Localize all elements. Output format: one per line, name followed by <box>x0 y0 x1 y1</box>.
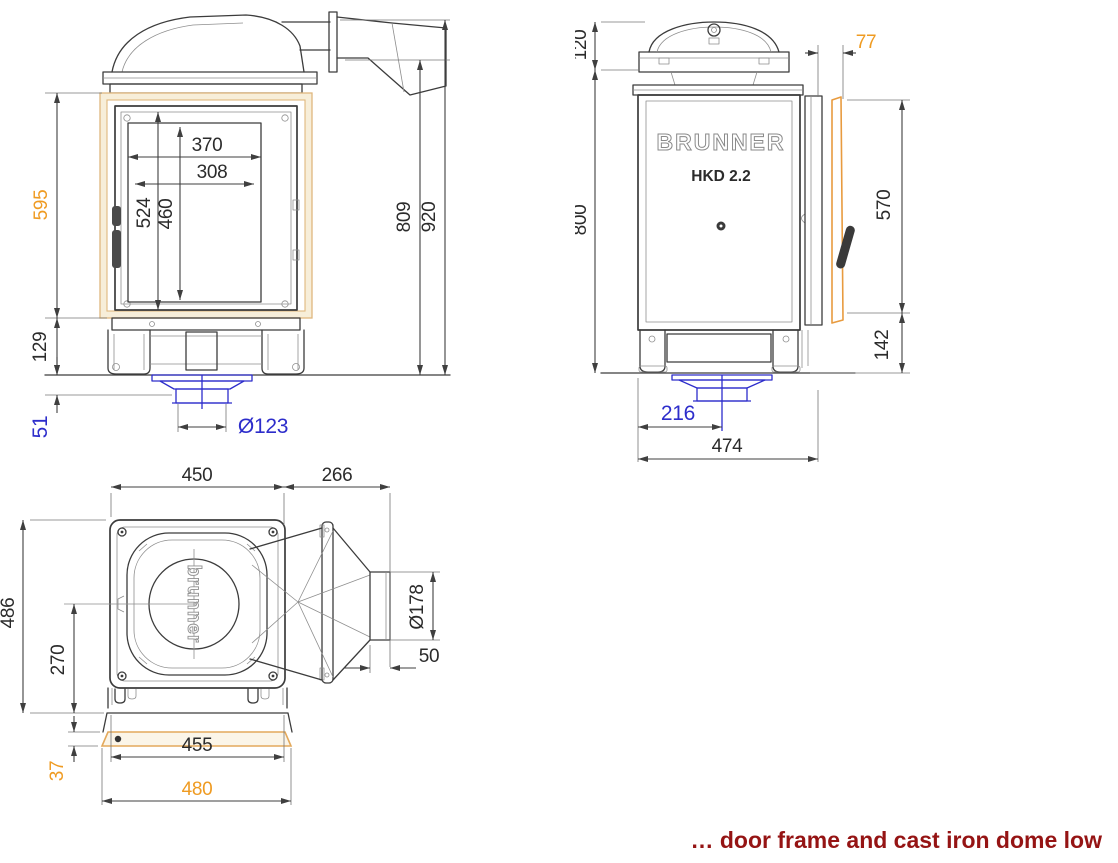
dim-body-depth: 486 <box>0 598 19 629</box>
front-plinth <box>45 318 450 375</box>
dim-flue-length: 266 <box>322 465 353 486</box>
dim-dome-height: 120 <box>575 30 591 61</box>
door-hinge-upper <box>112 206 121 226</box>
top-flue-cone <box>250 522 390 683</box>
dim-flue-center-offset: 270 <box>48 645 69 676</box>
dim-glass-width-inner: 308 <box>197 162 228 183</box>
top-view: brunner 450 266 <box>0 455 520 815</box>
dim-air-center-offset: 216 <box>661 402 695 425</box>
dim-collar-length: 50 <box>419 646 440 667</box>
side-dimensions: 120 800 77 570 142 216 474 <box>575 22 910 462</box>
dim-air-stub-height: 51 <box>29 416 52 439</box>
dim-glass-width: 370 <box>192 135 223 156</box>
side-door-profile <box>832 97 843 323</box>
dim-body-height: 800 <box>575 205 591 236</box>
dim-base-width: 455 <box>182 735 213 756</box>
base-plate-screw <box>115 736 121 742</box>
dim-flue-diameter: Ø178 <box>407 584 428 629</box>
brand-logo-top: brunner <box>183 565 204 644</box>
side-body: BRUNNER HKD 2.2 <box>633 85 856 330</box>
door-lock-mechanism <box>112 230 121 268</box>
dim-air-diameter: Ø123 <box>238 415 288 438</box>
dim-plinth-height: 129 <box>30 332 51 363</box>
side-plinth <box>601 330 855 431</box>
dim-glass-height: 460 <box>156 199 177 230</box>
side-dome <box>639 22 789 85</box>
dim-door-depth: 77 <box>856 32 877 53</box>
side-view: BRUNNER HKD 2.2 <box>575 0 1005 470</box>
dim-flue-underside-height: 809 <box>394 202 415 233</box>
dim-total-height: 920 <box>419 202 440 233</box>
front-dome-and-flue <box>103 12 446 95</box>
dim-frame-height: 595 <box>31 190 52 221</box>
top-dimensions: 450 266 486 270 Ø178 50 455 480 37 <box>0 465 440 805</box>
caption-text: … door frame and cast iron dome low <box>690 827 1102 854</box>
front-combustion-air-stub <box>152 375 252 409</box>
technical-drawing-sheet: 370 308 524 460 595 129 51 Ø123 809 920 <box>0 0 1118 863</box>
dim-base-plate-height: 37 <box>47 761 68 782</box>
model-label: HKD 2.2 <box>691 168 750 185</box>
front-view: 370 308 524 460 595 129 51 Ø123 809 920 <box>0 0 500 460</box>
door-handle <box>835 225 856 270</box>
top-body: brunner <box>64 520 285 688</box>
front-door-frame <box>100 93 312 318</box>
lifting-eye <box>708 24 720 36</box>
dim-door-opening-height: 524 <box>134 197 155 229</box>
brand-logo: BRUNNER <box>657 129 786 155</box>
dim-plinth-height-side: 142 <box>872 330 893 361</box>
dim-total-depth: 474 <box>712 436 744 457</box>
dim-body-width: 450 <box>182 465 213 486</box>
dim-base-plate-width: 480 <box>182 779 213 800</box>
dim-door-height: 570 <box>874 190 895 221</box>
